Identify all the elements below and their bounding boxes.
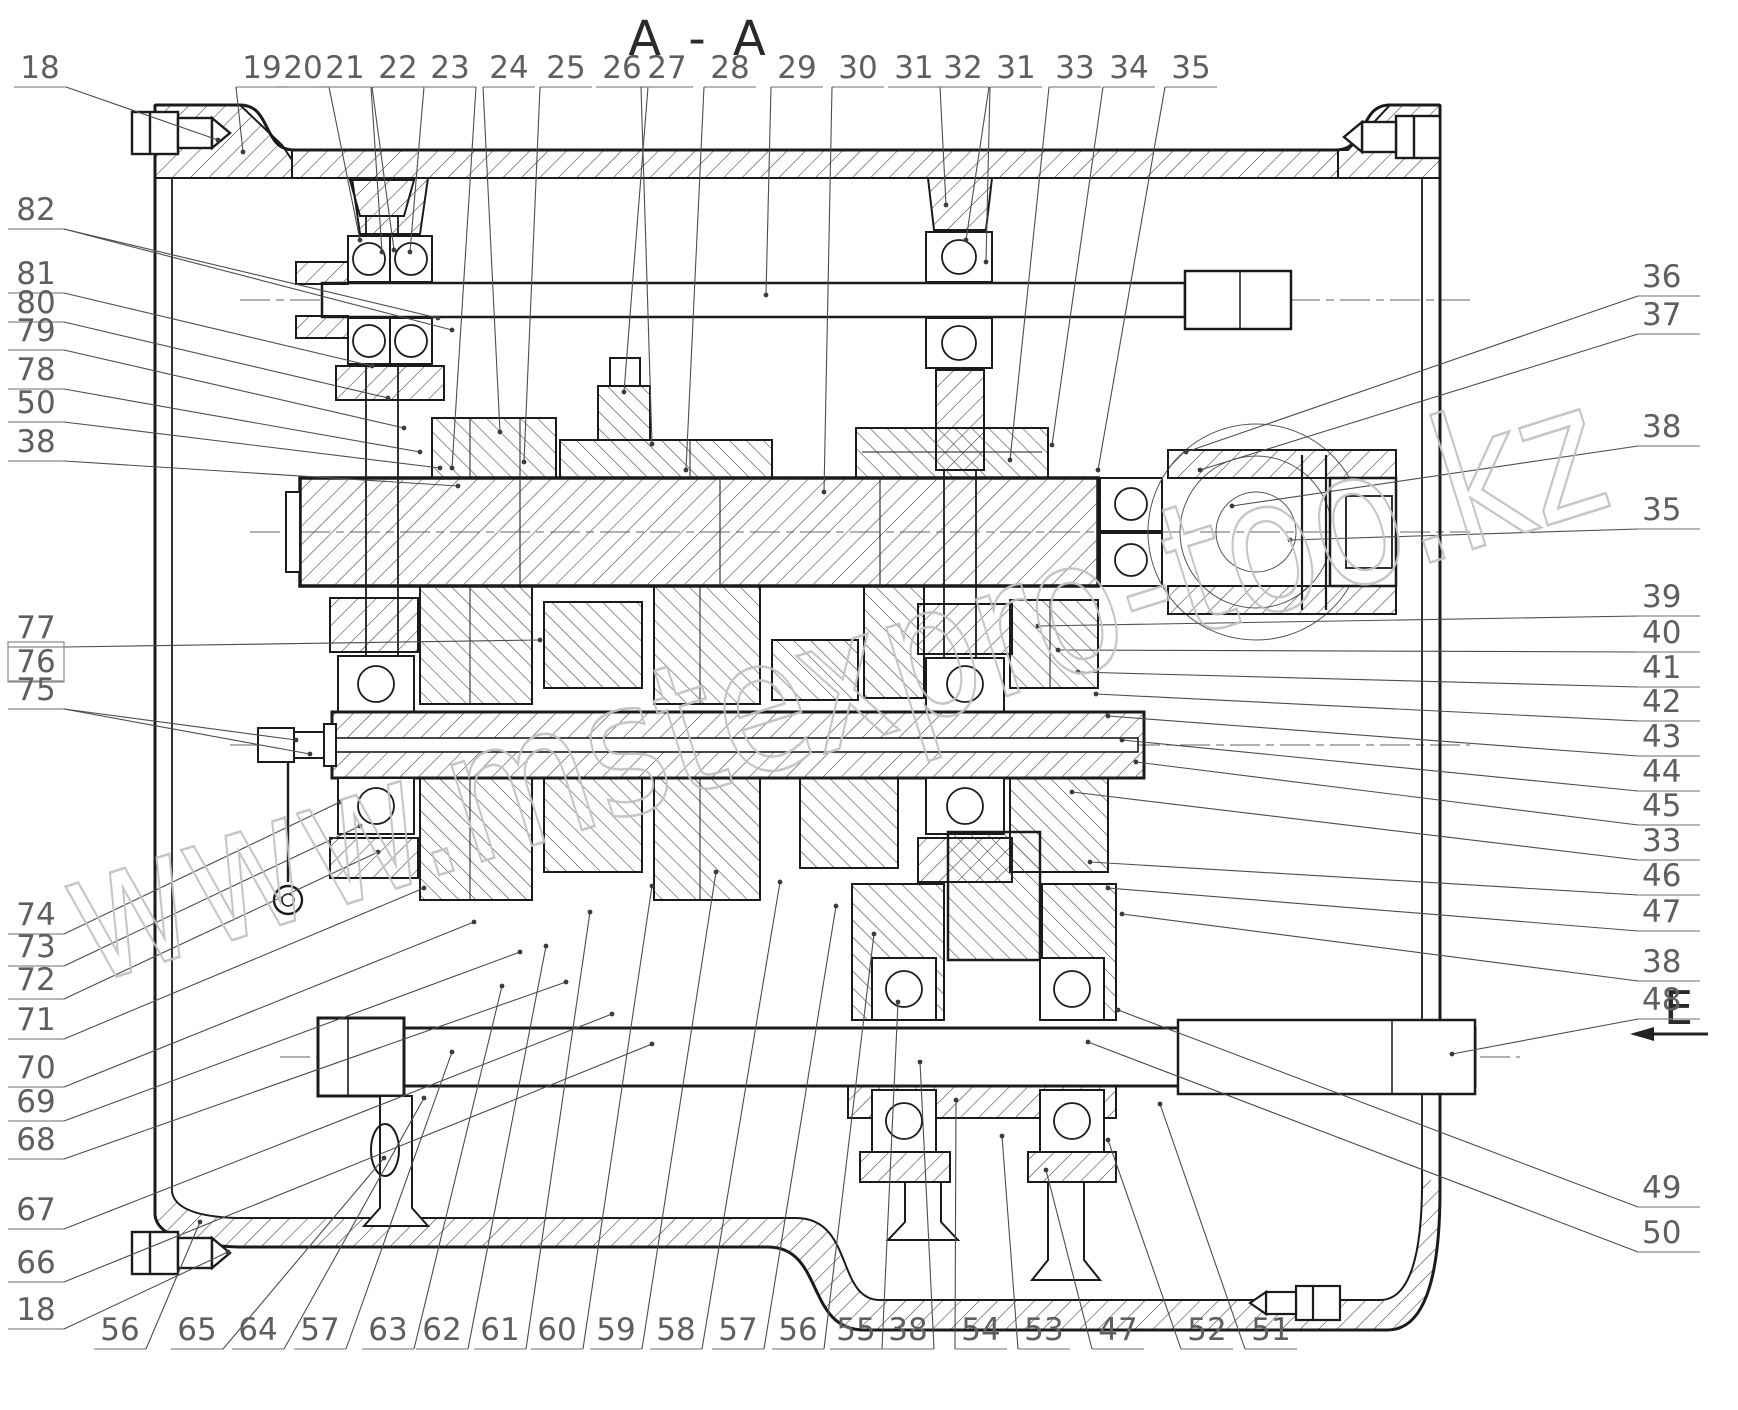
- callout-label: 26: [602, 50, 641, 86]
- leader-line: [1052, 87, 1103, 445]
- leader-dot: [1116, 1008, 1121, 1013]
- callout-label: 56: [778, 1312, 817, 1348]
- callout-label: 40: [1642, 615, 1681, 651]
- callout-label: 45: [1642, 788, 1681, 824]
- callout-62: 62: [416, 944, 548, 1349]
- callout-label: 57: [300, 1312, 339, 1348]
- leader-dot: [588, 910, 593, 915]
- leader-line: [483, 87, 500, 432]
- leader-line: [526, 912, 590, 1349]
- leader-dot: [610, 1012, 615, 1017]
- leader-dot: [1106, 714, 1111, 719]
- leader-dot: [380, 250, 385, 255]
- callout-label: 29: [777, 50, 816, 86]
- callout-48: 48: [1450, 982, 1700, 1056]
- leader-dot: [954, 1098, 959, 1103]
- leader-dot: [436, 316, 441, 321]
- leader-dot: [408, 250, 413, 255]
- callout-label: 44: [1642, 754, 1681, 790]
- callout-label: 27: [647, 50, 686, 86]
- leader-dot: [1120, 738, 1125, 743]
- callout-54: 54: [954, 1098, 1007, 1349]
- leader-dot: [418, 450, 423, 455]
- callout-label: 73: [16, 929, 55, 965]
- callout-47: 47: [1106, 886, 1700, 931]
- callout-label: 50: [1642, 1215, 1681, 1251]
- callout-label: 21: [325, 50, 364, 86]
- leader-line: [686, 87, 704, 470]
- callout-label: 31: [894, 50, 933, 86]
- callout-25: 25: [522, 50, 592, 464]
- callout-label: 59: [596, 1312, 635, 1348]
- bottom-bearing-unit: [848, 1086, 1116, 1280]
- drawing-canvas: A - A E 18192021222324252627282930313231…: [0, 0, 1738, 1410]
- leader-dot: [198, 1220, 203, 1225]
- callout-label: 33: [1055, 50, 1094, 86]
- leader-dot: [450, 466, 455, 471]
- leader-line: [702, 882, 780, 1349]
- callout-label: 71: [16, 1002, 55, 1038]
- leader-dot: [1106, 1138, 1111, 1143]
- callout-label: 64: [238, 1312, 277, 1348]
- leader-dot: [1008, 458, 1013, 463]
- callout-label: 30: [838, 50, 877, 86]
- callout-label: 63: [368, 1312, 407, 1348]
- callout-26: 26: [596, 50, 648, 394]
- leader-dot: [1088, 860, 1093, 865]
- leader-dot: [684, 468, 689, 473]
- callout-label: 18: [20, 50, 59, 86]
- callout-label: 33: [1642, 823, 1681, 859]
- callout-label: 57: [718, 1312, 757, 1348]
- leader-dot: [386, 396, 391, 401]
- leader-dot: [1086, 1040, 1091, 1045]
- leader-dot: [226, 1250, 231, 1255]
- leader-dot: [538, 638, 543, 643]
- callout-label: 74: [16, 897, 55, 933]
- output-shaft-left-end: [318, 1018, 404, 1096]
- callout-34: 34: [1050, 50, 1155, 447]
- callout-label: 41: [1642, 650, 1681, 686]
- leader-dot: [241, 150, 246, 155]
- leader-dot: [216, 138, 221, 143]
- watermark: www.mstexpro-too.kz: [38, 340, 1629, 1027]
- callout-label: 69: [16, 1084, 55, 1120]
- callout-label: 25: [546, 50, 585, 86]
- leader-dot: [650, 442, 655, 447]
- callout-label: 82: [16, 192, 55, 228]
- callout-label: 18: [16, 1292, 55, 1328]
- leader-dot: [500, 984, 505, 989]
- leader-dot: [1044, 1168, 1049, 1173]
- leader-dot: [622, 390, 627, 395]
- callout-label: 53: [1024, 1312, 1063, 1348]
- callout-38: 38: [1120, 912, 1700, 981]
- callout-label: 72: [16, 962, 55, 998]
- callout-label: 62: [422, 1312, 461, 1348]
- leader-dot: [944, 203, 949, 208]
- leader-dot: [1070, 790, 1075, 795]
- leader-dot: [370, 364, 375, 369]
- leader-dot: [358, 238, 363, 243]
- leader-line: [1452, 1019, 1638, 1054]
- callout-label: 43: [1642, 719, 1681, 755]
- callout-label: 65: [177, 1312, 216, 1348]
- callout-label: 50: [16, 385, 55, 421]
- housing-bottom-wall: [155, 1170, 1440, 1330]
- leader-dot: [964, 238, 969, 243]
- leader-line: [1090, 862, 1638, 895]
- leader-dot: [450, 328, 455, 333]
- callout-label: 47: [1098, 1312, 1137, 1348]
- callout-59: 59: [590, 870, 718, 1349]
- callout-label: 32: [943, 50, 982, 86]
- view-direction-arrow-head: [1630, 1027, 1654, 1041]
- callout-60: 60: [531, 884, 654, 1349]
- callout-label: 36: [1642, 259, 1681, 295]
- callout-33: 33: [1008, 50, 1101, 462]
- leader-dot: [872, 932, 877, 937]
- leader-dot: [522, 460, 527, 465]
- callout-label: 38: [1642, 409, 1681, 445]
- callout-label: 38: [1642, 944, 1681, 980]
- shift-fork-lower: [364, 1096, 428, 1226]
- callout-58: 58: [650, 880, 782, 1349]
- leader-dot: [456, 484, 461, 489]
- callout-label: 68: [16, 1122, 55, 1158]
- callout-28: 28: [684, 50, 756, 472]
- callout-label: 60: [537, 1312, 576, 1348]
- output-shaft-right-end: [1178, 1020, 1475, 1094]
- leader-dot: [422, 1096, 427, 1101]
- callout-label: 67: [16, 1192, 55, 1228]
- callout-label: 35: [1642, 492, 1681, 528]
- callout-label: 22: [378, 50, 417, 86]
- leader-dot: [1120, 912, 1125, 917]
- callout-label: 24: [489, 50, 528, 86]
- leader-dot: [518, 950, 523, 955]
- leader-dot: [392, 248, 397, 253]
- leader-line: [642, 872, 716, 1349]
- callout-label: 52: [1187, 1312, 1226, 1348]
- leader-line: [1010, 87, 1049, 460]
- upper-shaft-end: [1185, 271, 1291, 329]
- callout-61: 61: [474, 910, 592, 1349]
- callout-label: 61: [480, 1312, 519, 1348]
- support-web-right: [1032, 1182, 1100, 1280]
- leader-dot: [450, 1050, 455, 1055]
- leader-line: [1098, 87, 1165, 470]
- leader-line: [1108, 888, 1638, 931]
- leader-line: [1122, 914, 1638, 981]
- callout-label: 70: [16, 1050, 55, 1086]
- leader-dot: [1050, 443, 1055, 448]
- leader-line: [766, 87, 771, 295]
- callout-label: 48: [1642, 982, 1681, 1018]
- leader-dot: [896, 1000, 901, 1005]
- callout-label: 28: [710, 50, 749, 86]
- leader-dot: [382, 1156, 387, 1161]
- callout-label: 49: [1642, 1170, 1681, 1206]
- callout-44: 44: [1120, 738, 1700, 791]
- callout-35: 35: [1096, 50, 1217, 472]
- callout-42: 42: [1094, 684, 1700, 721]
- sectional-drawing: A - A E 18192021222324252627282930313231…: [0, 0, 1738, 1410]
- leader-line: [64, 709, 296, 740]
- leader-dot: [650, 1042, 655, 1047]
- callout-label: 19: [242, 50, 281, 86]
- callout-33: 33: [1070, 790, 1700, 860]
- leader-dot: [1106, 886, 1111, 891]
- callout-46: 46: [1088, 858, 1700, 895]
- leader-line: [452, 87, 476, 468]
- leader-dot: [1134, 760, 1139, 765]
- callout-label: 56: [100, 1312, 139, 1348]
- callout-label: 66: [16, 1245, 55, 1281]
- leader-line: [1072, 792, 1638, 860]
- leader-dot: [472, 920, 477, 925]
- leader-line: [1136, 762, 1638, 825]
- leader-line: [624, 87, 648, 392]
- callout-label: 54: [961, 1312, 1000, 1348]
- callout-label: 37: [1642, 297, 1681, 333]
- callout-label: 39: [1642, 579, 1681, 615]
- callout-label: 79: [16, 313, 55, 349]
- callout-label: 46: [1642, 858, 1681, 894]
- leader-dot: [1000, 1134, 1005, 1139]
- leader-dot: [1158, 1102, 1163, 1107]
- callout-label: 78: [16, 352, 55, 388]
- callout-label: 42: [1642, 684, 1681, 720]
- housing-top-wall: [292, 150, 1338, 178]
- leader-dot: [498, 430, 503, 435]
- upper-shaft-body: [322, 283, 1185, 317]
- leader-dot: [402, 426, 407, 431]
- leader-dot: [984, 260, 989, 265]
- callout-label: 35: [1171, 50, 1210, 86]
- callout-label: 23: [430, 50, 469, 86]
- upper-right-bearing: [926, 178, 992, 470]
- housing-top-contour: [155, 105, 1440, 150]
- callout-label: 51: [1251, 1312, 1290, 1348]
- callout-label: 55: [836, 1312, 875, 1348]
- leader-dot: [778, 880, 783, 885]
- leader-dot: [1450, 1052, 1455, 1057]
- callout-label: 20: [283, 50, 322, 86]
- leader-line: [1122, 740, 1638, 791]
- callout-label: 58: [656, 1312, 695, 1348]
- leader-line: [524, 87, 540, 462]
- callout-label: 47: [1642, 894, 1681, 930]
- callout-label: 75: [16, 672, 55, 708]
- leader-dot: [822, 490, 827, 495]
- leader-dot: [1096, 468, 1101, 473]
- leader-dot: [1184, 450, 1189, 455]
- callout-label: 38: [16, 424, 55, 460]
- leader-dot: [764, 293, 769, 298]
- leader-dot: [834, 904, 839, 909]
- leader-dot: [544, 944, 549, 949]
- leader-dot: [438, 466, 443, 471]
- callout-label: 77: [16, 610, 55, 646]
- support-web-left: [888, 1182, 958, 1240]
- leader-dot: [918, 1060, 923, 1065]
- callout-label: 31: [996, 50, 1035, 86]
- callout-label: 34: [1109, 50, 1148, 86]
- leader-dot: [650, 884, 655, 889]
- callout-label: 38: [888, 1312, 927, 1348]
- leader-line: [1108, 716, 1638, 756]
- leader-line: [1096, 694, 1638, 721]
- leader-dot: [564, 980, 569, 985]
- leader-line: [583, 886, 652, 1349]
- leader-dot: [714, 870, 719, 875]
